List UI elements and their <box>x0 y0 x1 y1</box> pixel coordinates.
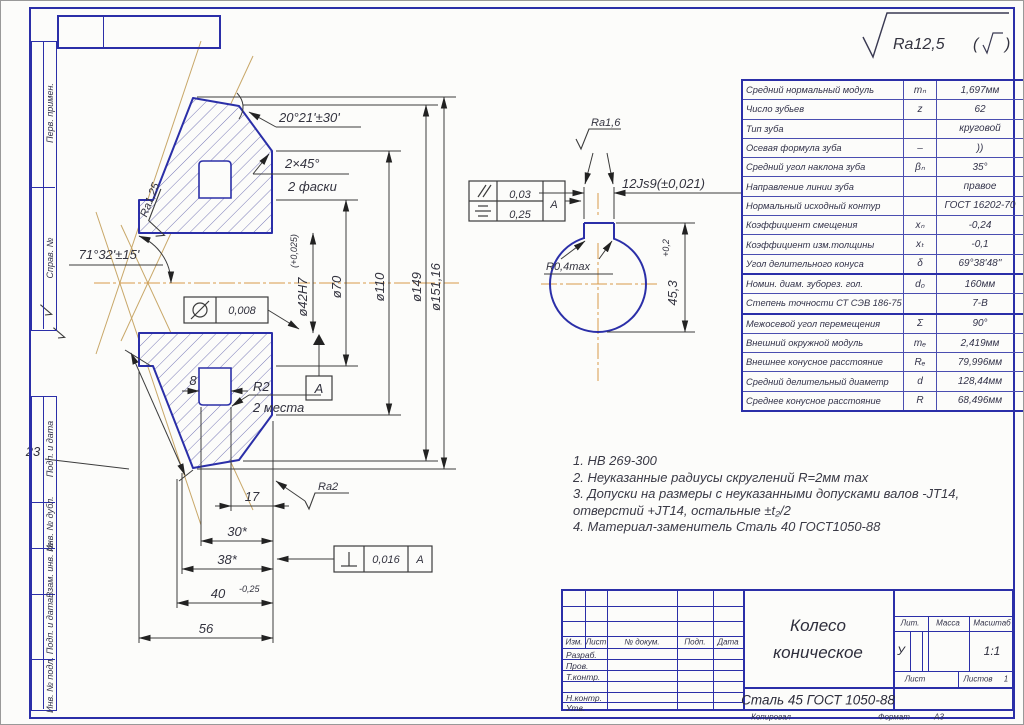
table-row: Внешний окружной модульmₑ2,419мм <box>742 333 1024 352</box>
copied-label: Копировал <box>751 713 791 722</box>
divider <box>103 17 104 47</box>
title-block: Изм. Лист № докум. Подп. Дата Разраб. Пр… <box>561 589 1014 711</box>
tb-scale-label: Масштаб <box>973 619 1010 628</box>
note-line: 3. Допуски на размеры с неуказанными доп… <box>573 486 1021 503</box>
technical-notes: 1. НВ 269-300 2. Неуказанные радиусы скр… <box>573 453 1021 536</box>
note-line: 1. НВ 269-300 <box>573 453 1021 470</box>
border-label-perv-primen: Перв. примен. <box>45 83 55 143</box>
table-row: Средний угол наклона зубаβₙ35° <box>742 158 1024 177</box>
table-row: Направление линии зубаправое <box>742 177 1024 196</box>
border-label-podp-data-1: Подп. и дата <box>45 421 55 477</box>
table-row: Межосевой угол перемещенияΣ90° <box>742 314 1024 334</box>
table-row: Число зубьевz62 <box>742 100 1024 119</box>
table-row: Средний делительный диаметрd128,44мм <box>742 372 1024 391</box>
note-line: 2. Неуказанные радиусы скруглений R=2мм … <box>573 470 1021 487</box>
tb-lit-label: Лит. <box>901 619 920 628</box>
tb-header-list: Лист <box>586 638 607 647</box>
table-row: Номин. диам. зуборез. гол.d₀160мм <box>742 274 1024 294</box>
table-row: Осевая формула зуба–)) <box>742 138 1024 157</box>
gear-parameter-table: Средний нормальный модульmₙ1,697мм Число… <box>741 79 1024 412</box>
part-title-line1: Колесо <box>790 616 846 636</box>
border-label-podp-data-2: Подп. и дата <box>45 598 55 654</box>
tb-role-tkontr: Т.контр. <box>566 672 600 682</box>
tb-sheets-label: Листов <box>963 675 992 684</box>
table-row: Средний нормальный модульmₙ1,697мм <box>742 80 1024 100</box>
tb-header-data: Дата <box>717 638 738 647</box>
tb-role-nkontr: Н.контр. <box>566 693 602 703</box>
tb-header-ndoc: № докум. <box>624 638 659 647</box>
border-label-sprav-no: Справ. № <box>45 238 55 279</box>
note-line: отверстий +JT14, остальные ±t₂/2 <box>573 503 1021 520</box>
table-row: Угол делительного конусаδ69°38'48'' <box>742 254 1024 274</box>
border-label-inv-podl: Инв. № подл. <box>45 657 55 713</box>
table-row: Коэффициент смещенияxₙ-0,24 <box>742 216 1024 235</box>
drawing-sheet: А 0,008 0,016 А Ra1,25 <box>0 0 1024 725</box>
table-row: Тип зубакруговой <box>742 119 1024 138</box>
format-label: Формат <box>878 713 910 722</box>
material-spec: Сталь 45 ГОСТ 1050-88 <box>741 693 895 708</box>
tb-sheets-value: 1 <box>1004 675 1008 684</box>
tb-header-podp: Подп. <box>684 638 705 647</box>
tb-mass-label: Масса <box>936 619 960 628</box>
tb-sheet-label: Лист <box>905 675 926 684</box>
border-label-vzam-inv: Взам. инв. № <box>45 542 55 598</box>
tb-header-izm: Изм. <box>565 638 582 647</box>
tb-scale-value: 1:1 <box>984 644 1001 658</box>
note-line: 4. Материал-заменитель Сталь 40 ГОСТ1050… <box>573 519 1021 536</box>
designation-box <box>57 15 221 49</box>
part-title-line2: коническое <box>773 643 863 663</box>
tb-lit-value: У <box>897 644 905 658</box>
format-value: А3 <box>934 713 944 722</box>
tb-role-razrab: Разраб. <box>566 650 597 660</box>
tb-role-utv: Утв. <box>566 703 585 713</box>
tb-role-prov: Пров. <box>566 661 588 671</box>
table-row: Степень точности СТ СЭВ 186-757-В <box>742 294 1024 314</box>
table-row: Внешнее конусное расстояниеRₑ79,996мм <box>742 353 1024 372</box>
table-row: Среднее конусное расстояниеR68,496мм <box>742 391 1024 411</box>
table-row: Нормальный исходный контурГОСТ 16202-70 <box>742 196 1024 215</box>
table-row: Коэффициент изм.толщиныxₜ-0,1 <box>742 235 1024 254</box>
